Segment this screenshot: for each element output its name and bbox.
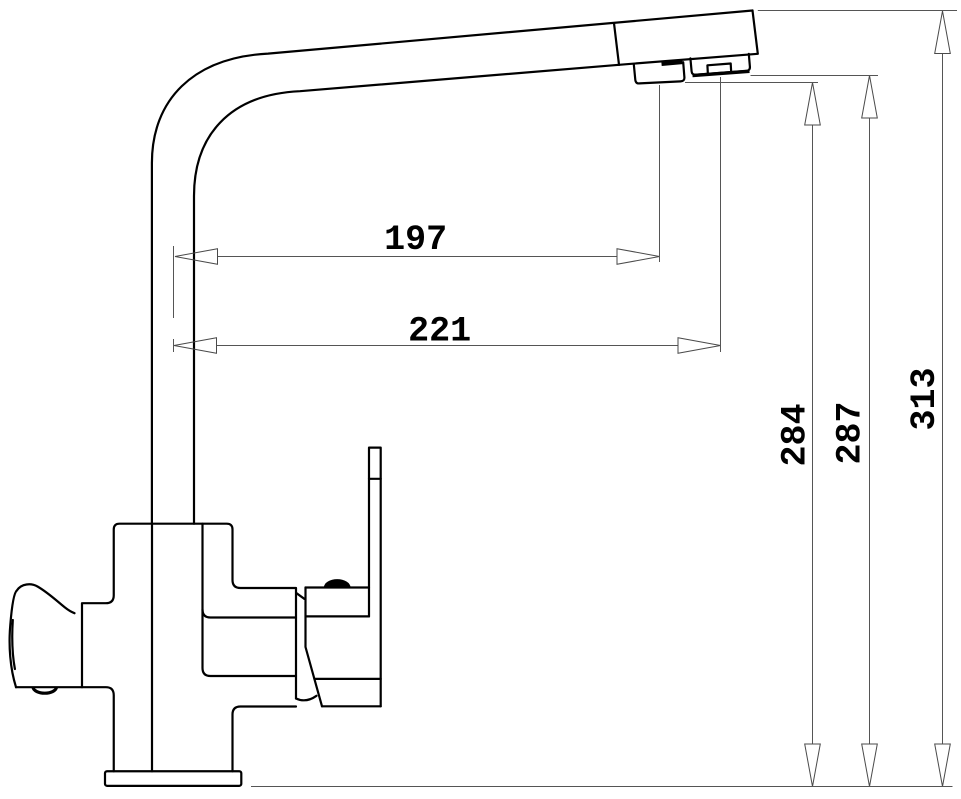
svg-text:313: 313 bbox=[905, 367, 945, 430]
svg-text:221: 221 bbox=[408, 312, 471, 352]
svg-text:284: 284 bbox=[776, 403, 816, 466]
svg-text:197: 197 bbox=[384, 220, 447, 260]
svg-text:287: 287 bbox=[831, 401, 871, 464]
